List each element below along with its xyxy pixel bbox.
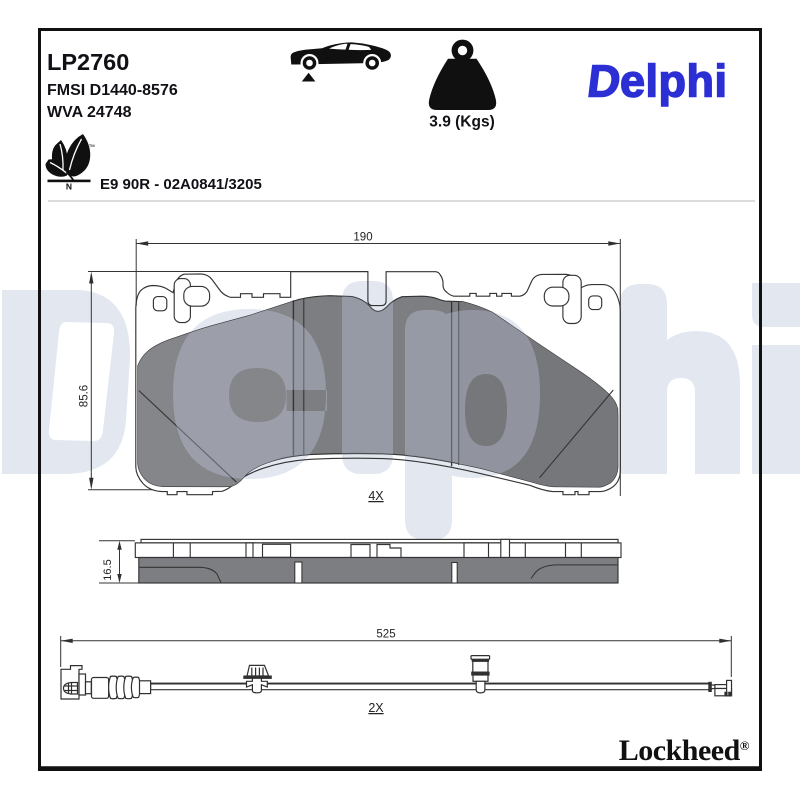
svg-text:WVA 24748: WVA 24748 — [47, 104, 132, 121]
svg-text:™: ™ — [89, 144, 96, 151]
svg-text:16.5: 16.5 — [102, 559, 114, 580]
svg-text:2X: 2X — [368, 701, 384, 715]
svg-text:E9 90R - 02A0841/3205: E9 90R - 02A0841/3205 — [100, 176, 262, 193]
svg-text:85.6: 85.6 — [79, 385, 91, 407]
svg-text:FMSI D1440-8576: FMSI D1440-8576 — [47, 82, 178, 99]
svg-text:D: D — [585, 56, 624, 107]
svg-text:525: 525 — [376, 629, 395, 641]
svg-text:3.9 (Kgs): 3.9 (Kgs) — [429, 114, 494, 131]
svg-text:elphi: elphi — [620, 56, 728, 107]
svg-text:N: N — [66, 182, 72, 192]
svg-text:LP2760: LP2760 — [47, 49, 129, 75]
svg-text:Lockheed®: Lockheed® — [619, 734, 750, 767]
svg-text:4X: 4X — [368, 489, 384, 503]
svg-text:190: 190 — [353, 232, 372, 244]
